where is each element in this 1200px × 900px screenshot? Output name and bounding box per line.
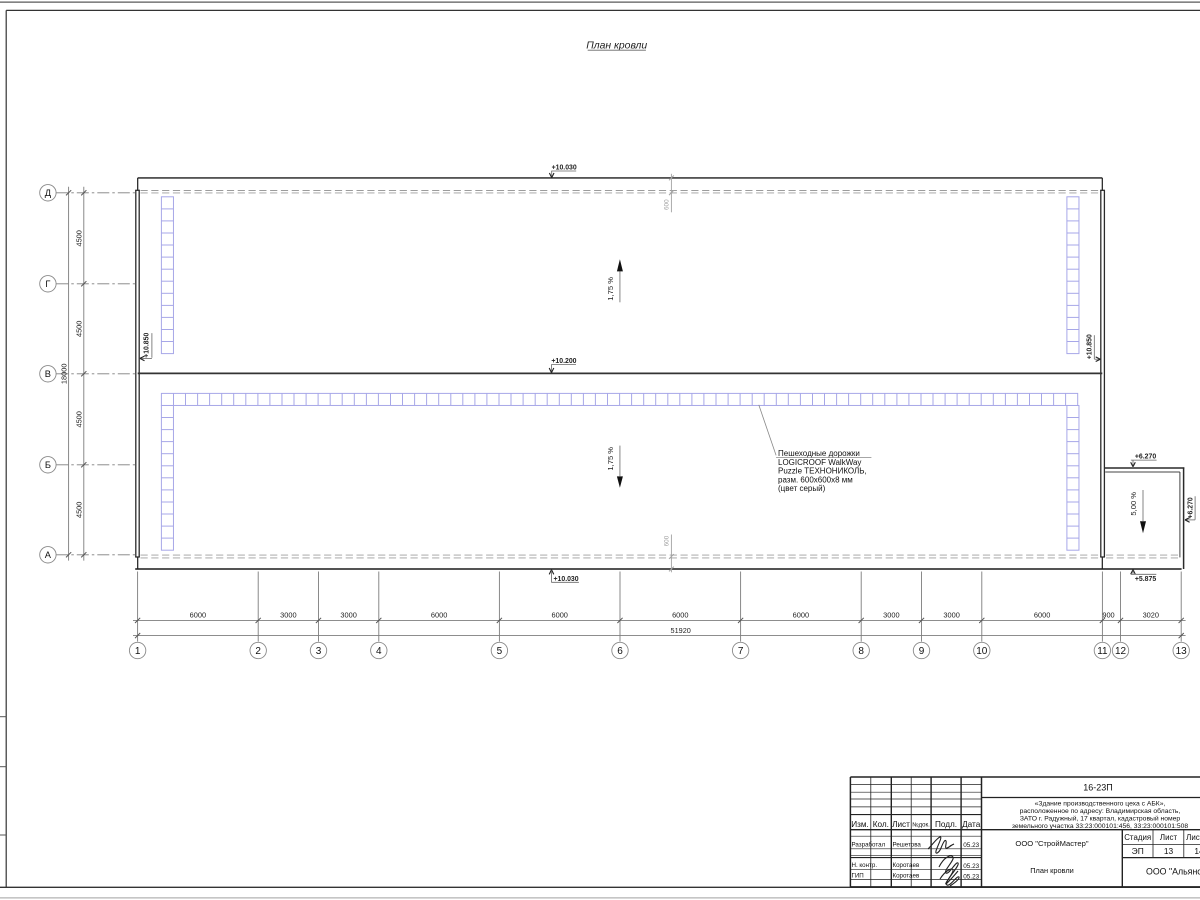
svg-text:7: 7	[738, 646, 744, 657]
svg-text:16-23П: 16-23П	[1083, 783, 1113, 793]
svg-text:+10.200: +10.200	[551, 358, 576, 365]
svg-text:3020: 3020	[1143, 611, 1159, 620]
svg-text:План кровли: План кровли	[1030, 866, 1074, 875]
svg-text:+5.875: +5.875	[1135, 576, 1156, 583]
svg-text:5,00 %: 5,00 %	[1129, 492, 1138, 516]
svg-text:Г: Г	[45, 279, 50, 289]
svg-text:3000: 3000	[280, 611, 296, 620]
svg-text:1,75 %: 1,75 %	[606, 277, 615, 301]
svg-text:6: 6	[617, 646, 623, 657]
svg-text:18000: 18000	[59, 364, 68, 385]
svg-text:10: 10	[976, 646, 988, 657]
svg-text:Коротаев: Коротаев	[893, 873, 920, 880]
svg-text:5: 5	[497, 646, 503, 657]
svg-text:6000: 6000	[793, 611, 809, 620]
svg-text:11: 11	[1097, 646, 1108, 657]
svg-text:Стадия: Стадия	[1124, 833, 1151, 842]
svg-text:05.23: 05.23	[963, 842, 979, 849]
svg-text:+10.030: +10.030	[552, 165, 577, 172]
svg-text:№док.: №док.	[912, 822, 930, 829]
svg-text:2: 2	[255, 646, 261, 657]
svg-text:13: 13	[1176, 646, 1188, 657]
svg-text:LOGICROOF WalkWay: LOGICROOF WalkWay	[778, 458, 861, 467]
svg-text:6000: 6000	[551, 611, 567, 620]
svg-text:Н. контр.: Н. контр.	[852, 862, 878, 869]
svg-text:+10.850: +10.850	[144, 333, 151, 358]
svg-text:4: 4	[376, 646, 382, 657]
svg-text:Подл.: Подл.	[935, 820, 957, 829]
svg-text:1: 1	[135, 646, 141, 657]
svg-text:Puzzle ТЕХНОНИКОЛЬ,: Puzzle ТЕХНОНИКОЛЬ,	[778, 467, 867, 476]
svg-text:3: 3	[316, 646, 322, 657]
svg-text:6000: 6000	[190, 611, 206, 620]
svg-text:Разработал: Разработал	[852, 842, 886, 849]
svg-text:+6.270: +6.270	[1188, 497, 1195, 518]
svg-text:Кол.: Кол.	[873, 820, 889, 829]
svg-text:9: 9	[919, 646, 925, 657]
svg-text:расположенное по адресу: Влади: расположенное по адресу: Владимирская об…	[1020, 807, 1181, 815]
svg-text:земельного участка 33:23:00010: земельного участка 33:23:000101:456, 33:…	[1012, 823, 1189, 830]
svg-text:6000: 6000	[431, 611, 447, 620]
svg-text:900: 900	[1102, 611, 1114, 620]
svg-text:51920: 51920	[671, 626, 691, 635]
svg-text:13: 13	[1164, 846, 1174, 856]
svg-text:Б: Б	[45, 460, 51, 470]
svg-text:ЭП: ЭП	[1132, 846, 1144, 856]
svg-text:ЗАТО г. Радужный, 17 квартал,: ЗАТО г. Радужный, 17 квартал, кадастровы…	[1020, 815, 1181, 823]
svg-text:3000: 3000	[883, 611, 899, 620]
svg-text:Д: Д	[45, 188, 52, 198]
svg-text:ООО "Альянс": ООО "Альянс"	[1146, 867, 1200, 877]
svg-text:8: 8	[858, 646, 864, 657]
svg-text:Решетова: Решетова	[893, 842, 922, 849]
svg-text:4500: 4500	[75, 321, 84, 337]
svg-text:«Здание производственного цеха: «Здание производственного цеха с АБК»,	[1035, 801, 1166, 808]
svg-text:+6.270: +6.270	[1135, 454, 1156, 461]
svg-text:+10.850: +10.850	[1087, 334, 1094, 359]
svg-text:А: А	[45, 550, 52, 560]
svg-text:Коротаев: Коротаев	[893, 862, 920, 869]
svg-text:6000: 6000	[1034, 611, 1050, 620]
svg-text:6000: 6000	[672, 611, 688, 620]
svg-text:4500: 4500	[75, 411, 84, 427]
svg-text:ООО "СтройМастер": ООО "СтройМастер"	[1015, 839, 1088, 848]
svg-text:05.23: 05.23	[963, 863, 979, 870]
svg-text:+10.030: +10.030	[554, 576, 579, 583]
svg-text:Пешеходные дорожки: Пешеходные дорожки	[778, 449, 860, 458]
svg-text:05.23: 05.23	[963, 873, 979, 880]
svg-text:Дата: Дата	[962, 820, 981, 829]
svg-text:600: 600	[663, 199, 670, 210]
svg-text:Лист: Лист	[892, 820, 910, 829]
svg-text:(цвет серый): (цвет серый)	[778, 484, 826, 493]
svg-text:3000: 3000	[943, 611, 959, 620]
svg-text:В: В	[45, 369, 51, 379]
svg-text:Изм.: Изм.	[851, 820, 869, 829]
svg-text:3000: 3000	[340, 611, 356, 620]
svg-text:4500: 4500	[75, 502, 84, 518]
svg-text:ГИП: ГИП	[852, 873, 864, 880]
svg-text:600: 600	[663, 535, 670, 546]
svg-text:1,75 %: 1,75 %	[606, 447, 615, 471]
svg-text:План кровли: План кровли	[586, 40, 647, 51]
svg-text:14: 14	[1194, 846, 1200, 856]
svg-text:разм. 600х600х8 мм: разм. 600х600х8 мм	[778, 475, 853, 484]
svg-text:Лист: Лист	[1160, 833, 1178, 842]
svg-text:4500: 4500	[75, 230, 84, 246]
svg-text:12: 12	[1115, 646, 1127, 657]
svg-text:Листов: Листов	[1186, 833, 1200, 842]
